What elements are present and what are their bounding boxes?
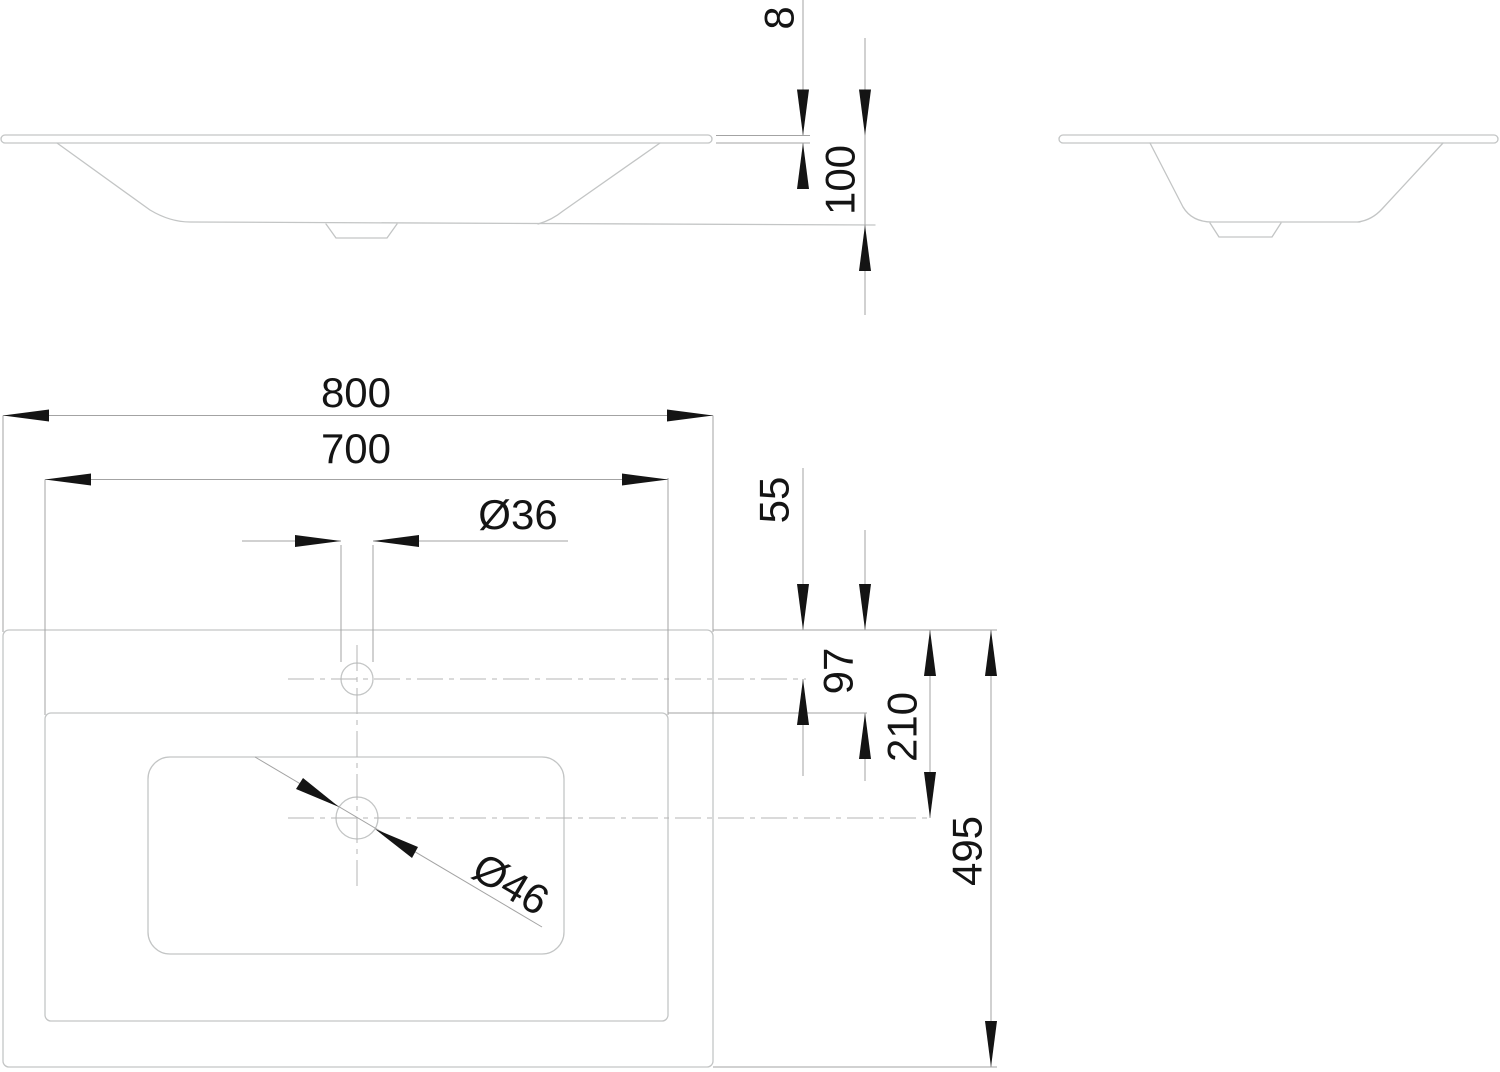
dim-overall-width: 800 <box>3 369 713 632</box>
dimension-annotations: 8 100 800 700 <box>3 0 997 1067</box>
dim-36-extension-lines <box>341 545 373 662</box>
dim-label-bowl-width: 700 <box>321 425 391 472</box>
dim-edge-to-bowl: 97 <box>815 530 872 781</box>
washbasin-dimension-drawing: 8 100 800 700 <box>0 0 1500 1072</box>
technical-drawing-page: 8 100 800 700 <box>0 0 1500 1072</box>
dim-210-arrow-down-icon <box>924 772 936 818</box>
dim-700-arrow-left-icon <box>45 474 91 486</box>
dim-edge-to-tap-hole: 55 <box>751 468 810 776</box>
dim-700-arrow-right-icon <box>622 474 668 486</box>
dim-label-drain-diameter: Ø46 <box>465 844 557 925</box>
dim-label-bowl-depth: 100 <box>817 145 864 215</box>
side-drain-boss <box>1210 223 1281 237</box>
side-basin-right-slope <box>1358 143 1443 222</box>
plan-view <box>3 630 997 1067</box>
dim-label-rim-thickness: 8 <box>756 6 803 29</box>
dim-800-arrow-right-icon <box>667 410 713 422</box>
dim-8-arrow-up-icon <box>797 143 809 189</box>
dim-97-arrow-up-icon <box>859 713 871 759</box>
dim-label-edge-to-bowl: 97 <box>815 648 862 695</box>
dim-tap-hole: Ø36 <box>242 491 568 662</box>
dim-100-arrow-up-icon <box>859 225 871 271</box>
dim-label-edge-to-tap-hole: 55 <box>751 477 798 524</box>
dim-8-arrow-down-icon <box>797 90 809 136</box>
dim-rim-thickness: 8 <box>756 0 810 189</box>
dim-495-arrow-down-icon <box>985 1021 997 1067</box>
dim-edge-to-drain: 210 <box>879 630 937 818</box>
dim-46-arrow-upper-left-icon <box>375 829 418 858</box>
dim-55-arrow-down-icon <box>797 584 809 630</box>
dim-495-arrow-up-icon <box>985 630 997 676</box>
dim-label-overall-width: 800 <box>321 369 391 416</box>
side-section-view <box>1059 135 1498 237</box>
front-basin-right-slope <box>538 143 660 224</box>
dim-label-overall-depth: 495 <box>944 816 991 886</box>
dim-bowl-depth: 100 <box>817 38 872 315</box>
dim-100-arrow-down-icon <box>859 90 871 136</box>
front-section-view <box>1 135 875 238</box>
dim-800-arrow-left-icon <box>3 410 49 422</box>
side-rim-outline <box>1059 135 1498 143</box>
front-drain-boss <box>326 224 397 238</box>
dim-bowl-width: 700 <box>45 425 668 715</box>
dim-55-arrow-up-icon <box>797 679 809 725</box>
side-basin-left-slope-and-bottom <box>1150 143 1360 222</box>
dim-210-arrow-up-icon <box>924 630 936 676</box>
front-rim-projection-lines <box>716 136 810 144</box>
dim-drain-hole: Ø46 <box>255 757 557 927</box>
front-rim-outline <box>1 135 712 143</box>
dim-46-arrow-lower-right-icon <box>296 778 339 807</box>
front-basin-left-slope-and-bottom <box>57 143 875 225</box>
dim-label-tap-hole-diameter: Ø36 <box>478 491 557 538</box>
dim-97-arrow-down-icon <box>859 584 871 630</box>
dim-label-edge-to-drain: 210 <box>879 692 926 762</box>
dim-overall-depth: 495 <box>944 630 998 1067</box>
dim-36-arrow-left-icon <box>373 535 419 547</box>
dim-36-arrow-right-icon <box>295 535 341 547</box>
